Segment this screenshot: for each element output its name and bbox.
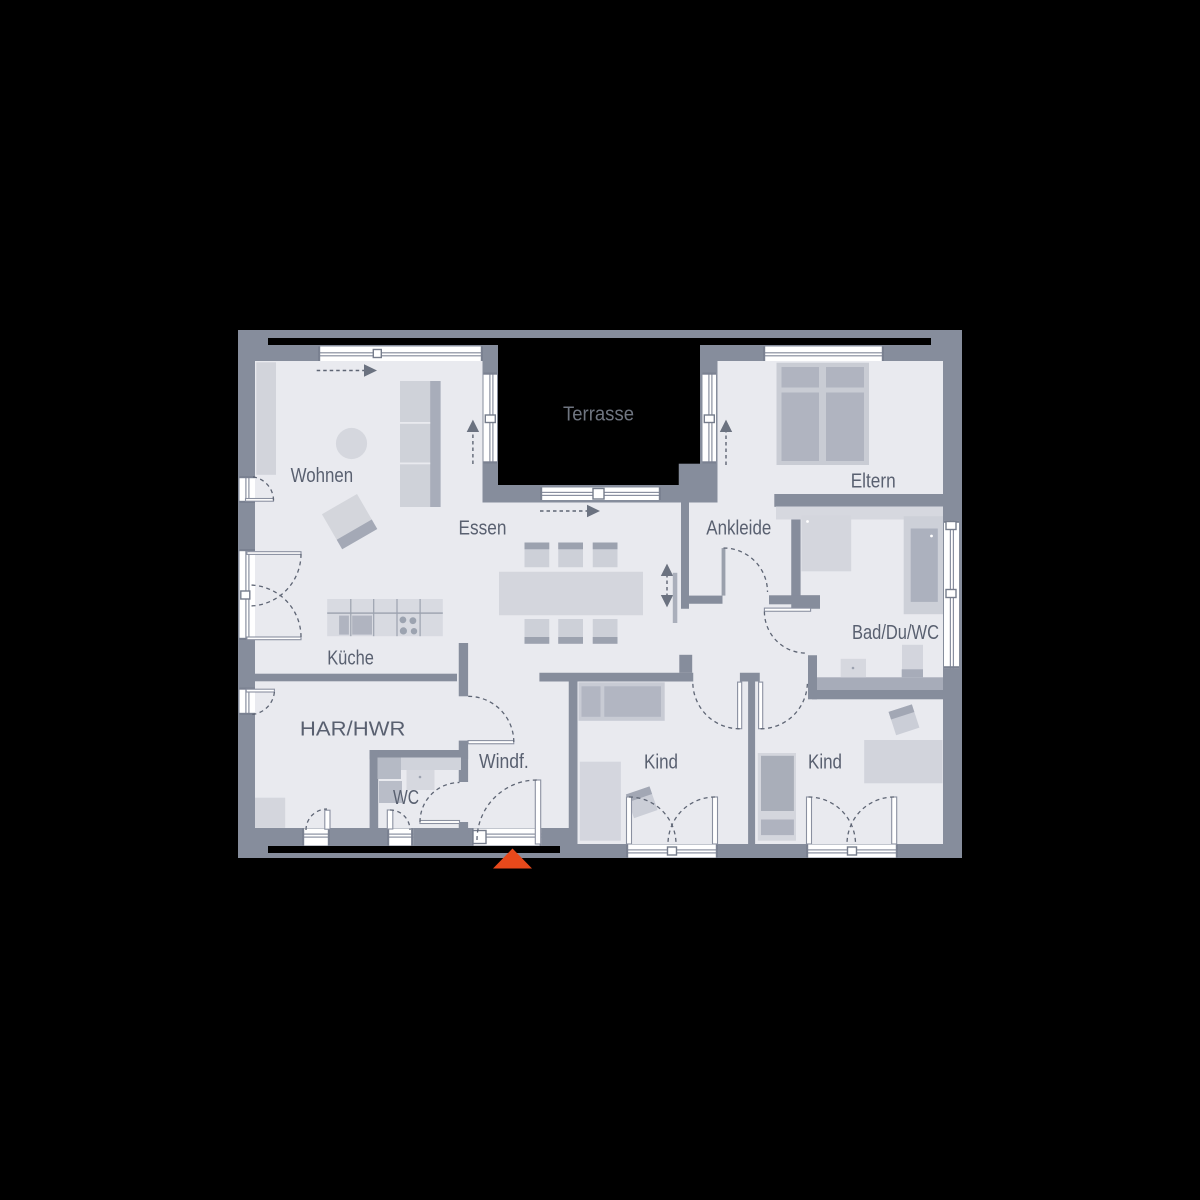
svg-text:WC: WC [393,786,419,809]
svg-text:Kind: Kind [644,751,678,774]
svg-text:Ankleide: Ankleide [706,516,771,539]
svg-text:Windf.: Windf. [479,750,529,773]
svg-text:Terrasse: Terrasse [563,403,634,426]
svg-text:Bad/Du/WC: Bad/Du/WC [852,621,939,644]
svg-text:Kind: Kind [808,751,842,774]
svg-text:HAR/HWR: HAR/HWR [300,718,406,741]
svg-text:Küche: Küche [327,647,374,670]
svg-text:Wohnen: Wohnen [291,464,354,487]
svg-text:Eltern: Eltern [851,470,896,493]
svg-text:Essen: Essen [459,517,507,540]
